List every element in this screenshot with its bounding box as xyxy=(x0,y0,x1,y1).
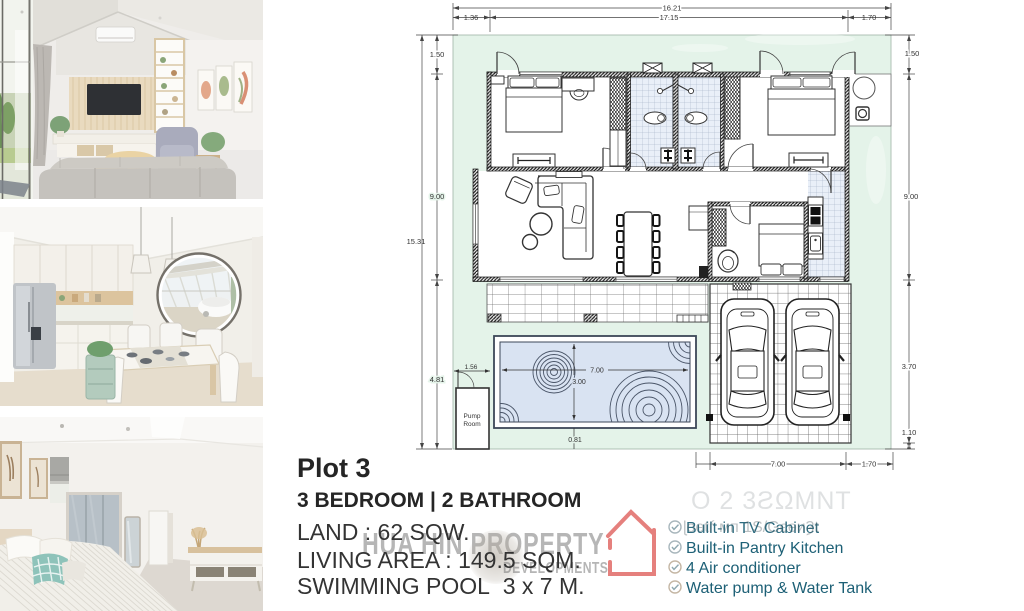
svg-text:1.36: 1.36 xyxy=(464,13,479,22)
svg-text:1.50: 1.50 xyxy=(905,49,920,58)
svg-text:1.50: 1.50 xyxy=(430,50,445,59)
svg-text:16.21: 16.21 xyxy=(663,4,682,13)
svg-text:3.70: 3.70 xyxy=(902,362,917,371)
svg-text:7.00: 7.00 xyxy=(771,460,786,469)
svg-text:17.15: 17.15 xyxy=(660,13,679,22)
svg-text:15.31: 15.31 xyxy=(407,237,426,246)
svg-text:1.70: 1.70 xyxy=(862,460,877,469)
svg-text:Pump: Pump xyxy=(464,413,481,420)
svg-text:7.00: 7.00 xyxy=(590,368,604,375)
svg-text:1.10: 1.10 xyxy=(902,428,917,437)
svg-text:Room: Room xyxy=(463,421,480,428)
svg-text:9.00: 9.00 xyxy=(904,192,919,201)
svg-text:0.81: 0.81 xyxy=(568,437,582,444)
svg-text:1.56: 1.56 xyxy=(465,364,478,371)
svg-text:9.00: 9.00 xyxy=(430,192,445,201)
svg-text:1.70: 1.70 xyxy=(862,13,877,22)
svg-text:4.81: 4.81 xyxy=(430,375,445,384)
svg-text:3.00: 3.00 xyxy=(572,379,586,386)
